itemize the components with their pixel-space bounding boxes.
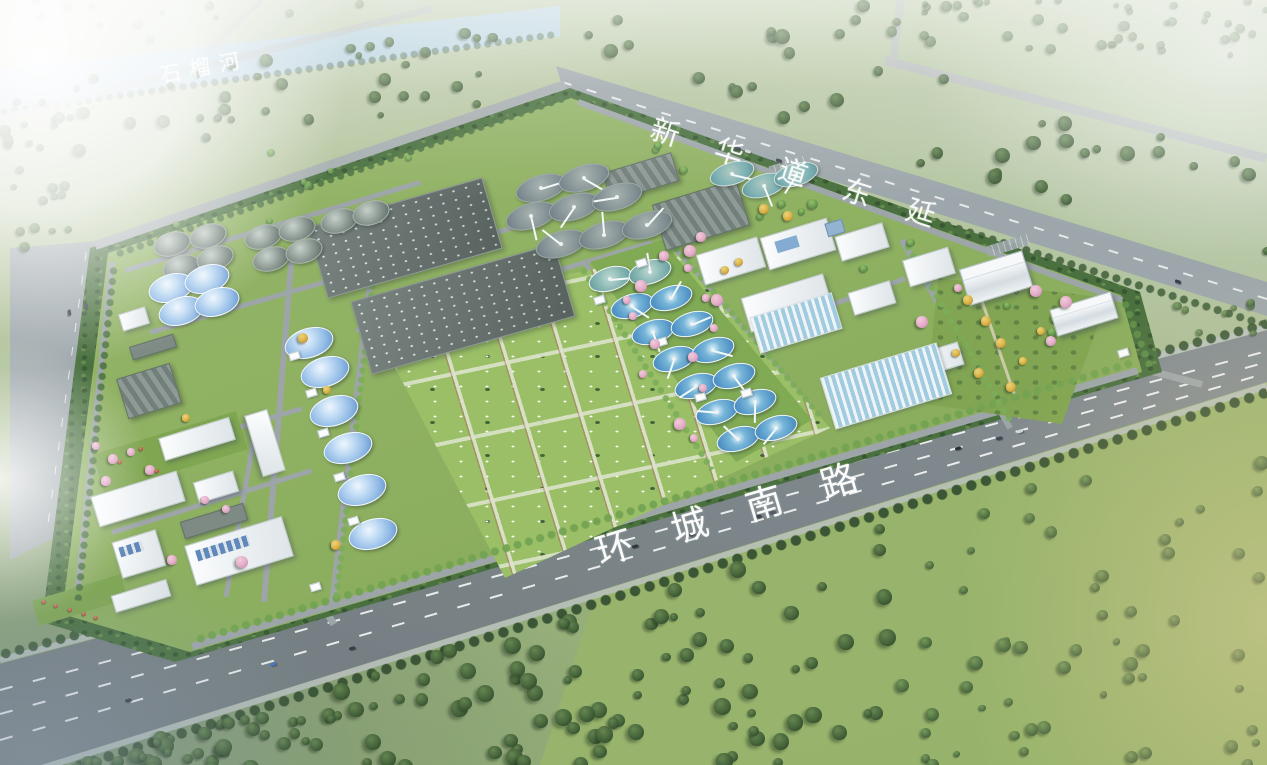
tree: [838, 634, 854, 650]
tree: [752, 581, 766, 595]
tree: [113, 756, 124, 765]
tree: [369, 91, 381, 103]
tree: [1080, 148, 1091, 159]
scraper-bridge: [692, 316, 711, 326]
tree: [220, 91, 231, 102]
tree: [742, 684, 758, 700]
tree: [1236, 24, 1245, 33]
tree: [304, 114, 314, 124]
tree: [11, 184, 17, 190]
tree: [628, 724, 644, 740]
tree: [778, 111, 790, 123]
tree: [1255, 456, 1267, 470]
tree: [378, 112, 384, 118]
tree: [1250, 330, 1257, 337]
tree: [1119, 21, 1130, 32]
tree: [1058, 116, 1073, 131]
tree: [690, 434, 698, 442]
tree: [920, 637, 931, 648]
tree: [716, 753, 732, 765]
tree: [1037, 327, 1045, 335]
tree: [997, 638, 1011, 652]
tree: [1176, 518, 1184, 526]
tree: [139, 753, 147, 761]
tree: [693, 72, 705, 84]
tree: [243, 760, 259, 765]
center-pier: [539, 186, 544, 191]
tree: [49, 228, 56, 235]
tree: [932, 147, 943, 158]
generated-landscape-layer: [0, 0, 1267, 765]
tree: [632, 669, 644, 681]
tree: [1058, 661, 1071, 674]
tree: [579, 706, 595, 722]
tree: [1033, 14, 1044, 25]
tree: [952, 349, 959, 356]
tree: [310, 738, 323, 751]
tree: [1046, 44, 1056, 54]
tree: [702, 294, 709, 301]
tree: [460, 663, 476, 679]
tree: [662, 653, 671, 662]
tree: [488, 746, 502, 760]
tree: [134, 20, 143, 29]
tree: [808, 199, 818, 209]
tree: [1140, 747, 1152, 759]
tree: [784, 606, 799, 621]
tree: [276, 78, 288, 90]
tree: [236, 556, 248, 568]
tree: [860, 265, 868, 273]
tree: [1036, 0, 1042, 4]
tree: [682, 686, 691, 695]
tree: [1157, 41, 1165, 49]
tree: [256, 712, 268, 724]
tree: [721, 266, 729, 274]
tree: [529, 645, 545, 661]
tree: [680, 648, 694, 662]
tree: [371, 671, 381, 681]
tree: [920, 31, 929, 40]
tree: [1197, 505, 1205, 513]
tree: [1126, 606, 1137, 617]
tree: [54, 112, 65, 123]
tree: [995, 148, 1010, 163]
tree: [37, 144, 44, 151]
tree: [32, 0, 39, 4]
tree: [77, 107, 89, 119]
tree: [1139, 673, 1147, 681]
tree: [1019, 357, 1026, 364]
tree: [654, 609, 668, 623]
tree: [851, 15, 861, 25]
tree: [260, 730, 270, 740]
tree: [197, 114, 204, 121]
tree: [1153, 146, 1165, 158]
tree: [1098, 610, 1107, 619]
tree: [1228, 52, 1234, 58]
tree: [228, 116, 235, 123]
tree: [240, 715, 250, 725]
tree: [1096, 570, 1109, 583]
tree: [604, 44, 618, 58]
tree: [720, 639, 734, 653]
tree: [730, 85, 743, 98]
tree: [775, 29, 790, 44]
tree: [635, 280, 646, 291]
tree: [624, 40, 634, 50]
tree: [1093, 145, 1101, 153]
tree: [623, 296, 631, 304]
tree: [799, 101, 810, 112]
tree: [670, 613, 678, 621]
tree: [1059, 134, 1073, 148]
tree: [302, 737, 310, 745]
tree: [0, 125, 11, 137]
tree: [1060, 296, 1071, 307]
tree: [974, 368, 984, 378]
tree: [73, 144, 86, 157]
tree: [558, 618, 569, 629]
tree: [574, 757, 588, 765]
tree: [348, 702, 363, 717]
center-pier: [753, 400, 758, 405]
tree: [744, 653, 754, 663]
tree: [160, 10, 165, 15]
tree: [830, 93, 844, 107]
tree: [684, 245, 696, 257]
tree: [778, 200, 786, 208]
tree: [301, 179, 307, 185]
tree: [476, 71, 482, 77]
tree: [38, 13, 46, 21]
center-pier: [694, 384, 699, 389]
tree: [1026, 723, 1039, 736]
tree: [773, 733, 790, 750]
tree: [365, 734, 381, 750]
tree: [749, 726, 759, 736]
tree: [58, 191, 65, 198]
tree: [875, 524, 885, 534]
tree: [214, 114, 222, 122]
tree: [1003, 31, 1013, 41]
tree: [1202, 18, 1208, 24]
tree: [16, 227, 25, 236]
tree: [416, 693, 428, 705]
tree: [879, 629, 896, 646]
tree: [1120, 146, 1135, 161]
center-pier: [736, 437, 741, 442]
tree: [1230, 32, 1241, 43]
tree: [64, 2, 73, 11]
tree: [959, 12, 968, 21]
tree: [459, 697, 472, 710]
tree: [520, 673, 537, 690]
tree: [1243, 759, 1252, 765]
tree: [613, 15, 623, 25]
tree: [67, 114, 74, 121]
tree: [1137, 43, 1144, 50]
tree: [629, 312, 636, 319]
tree: [916, 316, 927, 327]
tree: [593, 745, 606, 758]
tree: [659, 251, 668, 260]
scraper-bridge: [713, 350, 733, 357]
tree: [1248, 725, 1258, 735]
tree: [678, 694, 689, 705]
center-pier: [645, 223, 650, 228]
tree: [806, 657, 818, 669]
tree: [988, 169, 1002, 183]
tree: [21, 121, 29, 129]
tree: [262, 107, 270, 115]
tree: [634, 691, 642, 699]
tree: [147, 35, 154, 42]
tree: [504, 734, 517, 747]
tree: [1244, 0, 1251, 5]
tree: [182, 414, 190, 422]
tree: [443, 644, 457, 658]
tree: [1114, 3, 1120, 9]
tree: [783, 211, 793, 221]
tree: [363, 758, 372, 765]
tree: [333, 683, 350, 700]
tree: [1026, 45, 1032, 51]
tree: [984, 0, 991, 5]
tree: [214, 15, 219, 20]
tree: [1247, 299, 1255, 307]
tree: [710, 324, 718, 332]
tree: [534, 714, 548, 728]
scraper-bridge: [754, 403, 756, 423]
tree: [202, 133, 211, 142]
tree: [711, 294, 723, 306]
tree: [684, 264, 692, 272]
tree: [1014, 641, 1028, 655]
tree: [674, 418, 685, 429]
tree: [346, 44, 356, 54]
tree: [379, 73, 391, 85]
tree: [1129, 32, 1138, 41]
tree: [668, 583, 682, 597]
tree: [688, 352, 698, 362]
center-pier: [669, 296, 674, 301]
tree: [92, 757, 102, 765]
tree: [395, 694, 405, 704]
tree: [16, 166, 24, 174]
tree: [923, 1, 928, 6]
scraper-bridge: [647, 207, 664, 226]
tree: [421, 91, 431, 101]
tree: [290, 728, 300, 738]
tree: [1230, 156, 1240, 166]
tree: [201, 496, 208, 503]
tree: [1030, 285, 1042, 297]
tree: [1061, 194, 1072, 205]
tree: [1163, 547, 1175, 559]
tree: [1020, 747, 1029, 756]
tree: [1170, 2, 1177, 9]
tree: [297, 716, 306, 725]
tree: [1125, 657, 1139, 671]
tree: [402, 61, 410, 69]
center-pier: [672, 357, 677, 362]
tree: [693, 632, 707, 646]
tree: [1055, 0, 1062, 4]
tree: [30, 223, 40, 233]
tree: [874, 66, 884, 76]
tree: [4, 136, 14, 146]
tree: [452, 81, 462, 91]
tree: [60, 181, 70, 191]
tree: [331, 540, 340, 549]
tree: [370, 702, 378, 710]
tree: [1058, 23, 1068, 33]
tree: [1035, 180, 1048, 193]
tree: [1157, 133, 1165, 141]
tree: [108, 454, 118, 464]
tree: [1173, 302, 1182, 311]
center-pier: [608, 277, 613, 282]
tree: [774, 758, 783, 765]
roof-panel: [775, 235, 801, 253]
center-pier: [559, 242, 564, 247]
tree: [969, 656, 983, 670]
tree: [356, 0, 364, 8]
tree: [406, 155, 411, 160]
center-pier: [774, 426, 779, 431]
tree: [380, 751, 396, 765]
tree: [89, 74, 99, 84]
tree: [418, 673, 431, 686]
tree: [735, 258, 743, 266]
tree: [278, 737, 291, 750]
tree: [784, 47, 795, 58]
tree: [963, 295, 973, 305]
tree: [696, 232, 705, 241]
center-pier: [715, 410, 720, 415]
tree: [1204, 11, 1211, 18]
tree: [65, 226, 72, 233]
tree: [1263, 7, 1267, 13]
tree: [979, 705, 986, 712]
tree: [1125, 4, 1132, 11]
tree: [101, 476, 110, 485]
tree: [473, 100, 481, 108]
tree: [939, 74, 949, 84]
aerial-rendering-scene: 石榴河 新华道东延 环城南路: [0, 0, 1267, 765]
tree: [1225, 20, 1232, 27]
tree: [247, 722, 261, 736]
tree: [157, 115, 170, 128]
tree: [953, 1, 962, 10]
center-pier: [529, 214, 534, 219]
tree: [198, 727, 212, 741]
tree: [926, 708, 939, 721]
tree: [260, 54, 273, 67]
tree: [1190, 162, 1197, 169]
tree: [125, 117, 137, 129]
tree: [799, 208, 806, 215]
scraper-bridge: [593, 197, 617, 203]
tree: [356, 52, 362, 58]
tree: [748, 82, 757, 91]
tree: [183, 754, 193, 764]
tree: [254, 73, 261, 80]
tree: [792, 665, 800, 673]
tree: [477, 685, 493, 701]
tree: [1005, 698, 1013, 706]
tree: [48, 183, 58, 193]
tree: [219, 104, 230, 115]
tree: [1097, 40, 1107, 50]
tree: [714, 698, 731, 715]
scraper-bridge: [610, 277, 630, 281]
tree: [1010, 731, 1019, 740]
tree: [127, 448, 134, 455]
tree: [917, 159, 925, 167]
tree: [818, 582, 827, 591]
tree: [145, 465, 154, 474]
tree: [206, 1, 215, 10]
tree: [567, 722, 579, 734]
tree: [835, 29, 845, 39]
tree: [1263, 247, 1267, 255]
tree: [650, 339, 659, 348]
tree: [926, 561, 934, 569]
tree: [1236, 685, 1243, 692]
tree: [327, 715, 335, 723]
tree: [26, 140, 34, 148]
tree: [39, 196, 48, 205]
tree: [1231, 305, 1237, 311]
tree: [504, 637, 521, 654]
tree: [286, 9, 294, 17]
tree: [585, 31, 593, 39]
tree: [88, 3, 95, 10]
tree: [896, 679, 909, 692]
tree: [975, 0, 983, 7]
tree: [164, 748, 172, 756]
tree: [981, 316, 991, 326]
tree: [864, 709, 873, 718]
tree: [1160, 534, 1171, 545]
tree: [1242, 168, 1256, 182]
tree: [960, 586, 968, 594]
tree: [399, 91, 409, 101]
tree: [517, 755, 531, 765]
tree: [193, 748, 204, 759]
tree: [1221, 35, 1230, 44]
tree: [696, 608, 705, 617]
tree: [877, 589, 893, 605]
roof-equipment-row: [118, 541, 144, 557]
tree: [51, 193, 57, 199]
center-pier: [602, 233, 607, 238]
tree: [927, 759, 938, 765]
tree: [1182, 306, 1190, 314]
center-pier: [572, 205, 577, 210]
tree: [1026, 136, 1040, 150]
tree: [488, 33, 497, 42]
tree: [857, 0, 869, 12]
tree: [398, 759, 413, 765]
tree: [1046, 526, 1058, 538]
tree: [564, 676, 572, 684]
tree: [907, 239, 914, 246]
tree: [1253, 486, 1263, 496]
tree: [805, 707, 821, 723]
